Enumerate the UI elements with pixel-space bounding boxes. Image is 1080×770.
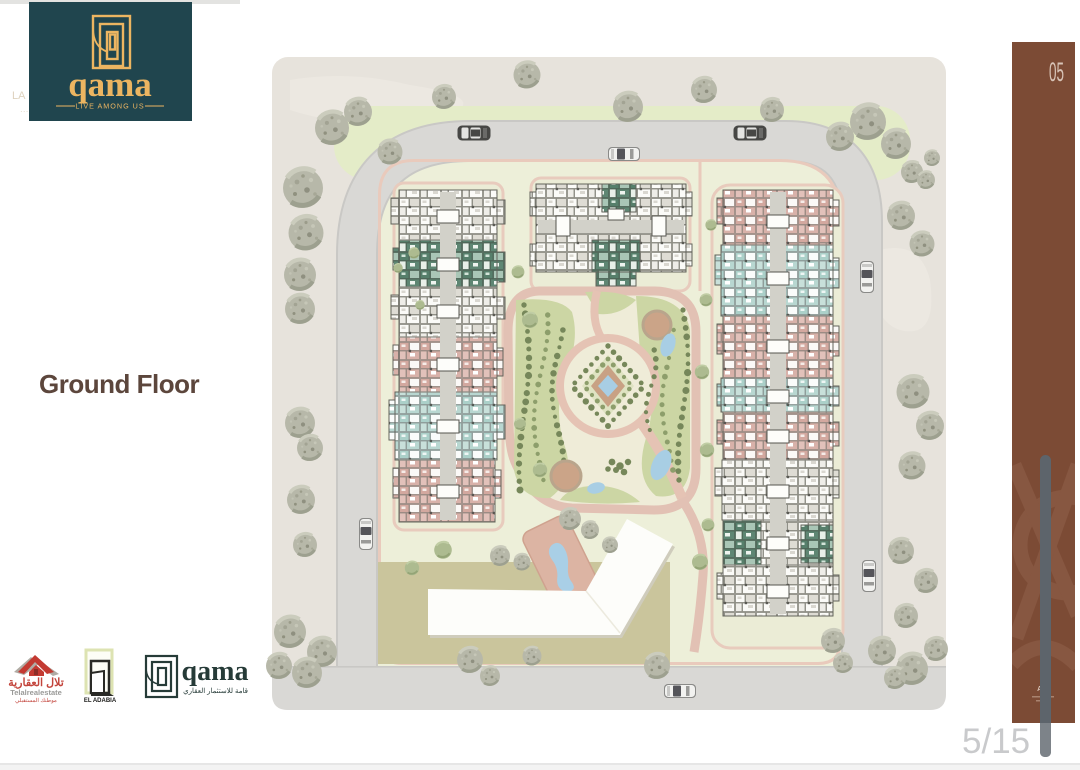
svg-text:موطنك المستقبلي: موطنك المستقبلي: [15, 697, 57, 704]
svg-text:05: 05: [1049, 57, 1064, 87]
svg-text:qama: qama: [182, 656, 249, 687]
svg-text:LIVE AMONG US: LIVE AMONG US: [75, 102, 144, 111]
svg-text:Telalrealestate: Telalrealestate: [10, 688, 62, 697]
svg-text:قامة للاستثمار العقاري: قامة للاستثمار العقاري: [183, 687, 248, 695]
svg-text:qama: qama: [68, 65, 152, 104]
svg-text:EL ADABIA: EL ADABIA: [84, 698, 117, 704]
